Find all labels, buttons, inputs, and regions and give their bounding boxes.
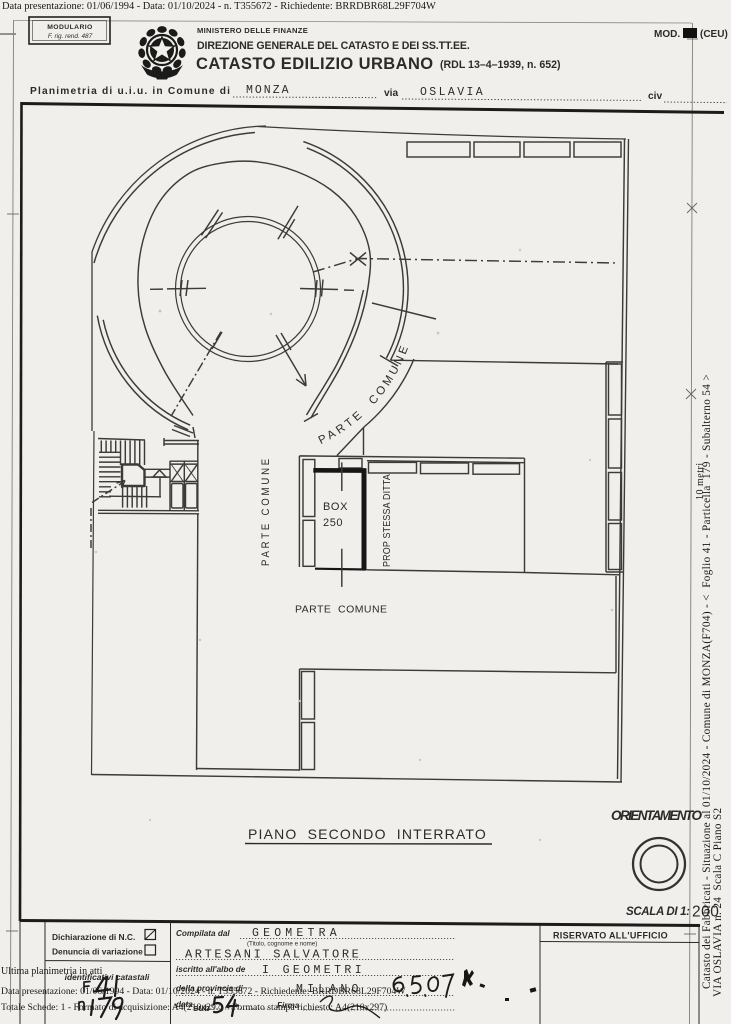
svg-text:GEOMETRA: GEOMETRA <box>252 927 341 940</box>
svg-text:I GEOMETRI: I GEOMETRI <box>262 964 365 977</box>
svg-text:(RDL 13–4–1939, n. 652): (RDL 13–4–1939, n. 652) <box>440 59 561 71</box>
svg-text:MOD.: MOD. <box>654 29 680 40</box>
svg-text:(Titolo, cognome e nome): (Titolo, cognome e nome) <box>247 941 317 948</box>
svg-text:PARTE COMUNE: PARTE COMUNE <box>295 604 390 616</box>
svg-text:RISERVATO ALL'UFFICIO: RISERVATO ALL'UFFICIO <box>553 931 668 941</box>
svg-text:Dichiarazione di N.C.: Dichiarazione di N.C. <box>52 932 135 942</box>
svg-text:MODULARIO: MODULARIO <box>47 24 93 31</box>
svg-text:(CEU): (CEU) <box>700 29 728 40</box>
svg-text:iscritto all'albo de: iscritto all'albo de <box>176 965 246 974</box>
svg-text:F. rig. rend. 487: F. rig. rend. 487 <box>48 33 93 40</box>
svg-text:MONZA: MONZA <box>246 84 291 97</box>
svg-text:CATASTO EDILIZIO URBANO: CATASTO EDILIZIO URBANO <box>196 55 434 73</box>
svg-text:civ: civ <box>648 91 662 102</box>
svg-text:Compilata dal: Compilata dal <box>176 929 230 938</box>
svg-text:MINISTERO DELLE FINANZE: MINISTERO DELLE FINANZE <box>197 26 308 35</box>
svg-text:DIREZIONE GENERALE DEL CATASTO: DIREZIONE GENERALE DEL CATASTO E DEI SS.… <box>197 40 470 52</box>
svg-text:Planimetria di u.i.u. in Comun: Planimetria di u.i.u. in Comune di <box>30 86 230 97</box>
svg-text:250: 250 <box>323 517 343 529</box>
svg-text:Denuncia di variazione: Denuncia di variazione <box>52 947 143 957</box>
svg-text:via: via <box>384 88 398 99</box>
svg-text:PARTE COMUNE: PARTE COMUNE <box>317 342 412 447</box>
svg-text:ORIENTAMENTO: ORIENTAMENTO <box>611 808 702 823</box>
svg-text:OSLAVIA: OSLAVIA <box>420 86 485 99</box>
svg-text:ARTESANI SALVATORE: ARTESANI SALVATORE <box>185 948 361 962</box>
svg-text:SCALA DI 1:: SCALA DI 1: <box>626 906 690 918</box>
svg-text:PARTE COMUNE: PARTE COMUNE <box>260 456 272 566</box>
svg-text:BOX: BOX <box>323 501 348 513</box>
svg-text:PROP STESSA DITTA: PROP STESSA DITTA <box>382 474 393 567</box>
svg-text:PIANO SECONDO INTERRATO: PIANO SECONDO INTERRATO <box>248 826 489 842</box>
